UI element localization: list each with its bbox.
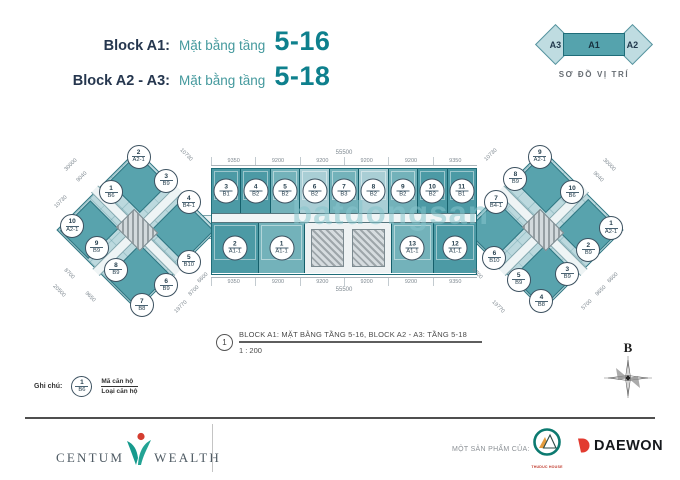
block-a2a3-subtitle: Mặt bằng tầng	[179, 73, 265, 88]
unit-code: 11	[458, 183, 465, 190]
unit-code: 7	[140, 298, 144, 305]
dimension-label: 9200	[388, 157, 432, 165]
dimension-label: 9200	[255, 157, 299, 165]
unit-circle: 12 A1-1	[443, 236, 468, 261]
location-block-a1-label: A1	[588, 40, 600, 50]
unit-circle: 7 B3	[331, 179, 356, 204]
compass: B	[602, 340, 654, 403]
footer-divider	[212, 424, 213, 472]
drawing-title: BLOCK A1: MẶT BẰNG TẦNG 5-16, BLOCK A2 -…	[239, 330, 482, 339]
unit-circle: 3 B1	[214, 179, 239, 204]
block-a1-bottom-row: 2 A1-1 1 A1-1	[212, 223, 476, 273]
unit-circle: 3 B9	[555, 262, 579, 286]
centum-wealth-icon	[126, 432, 152, 466]
location-block-a2-label: A2	[627, 39, 639, 49]
location-diagram: A3 A1 A2 SƠ ĐỒ VỊ TRÍ	[516, 30, 672, 79]
unit-circle: 7 B4-1	[484, 190, 508, 214]
unit-type: B2	[279, 191, 292, 199]
unit-type: B8	[535, 301, 548, 309]
unit-code: 6	[313, 183, 317, 190]
dimension-label: 9200	[300, 278, 344, 286]
dimension-label: 9350	[433, 278, 477, 286]
unit-type: B2	[396, 191, 409, 199]
unit-code: 5	[187, 254, 191, 261]
unit-code: 8	[514, 171, 518, 178]
dimension-row-top: 935092009200920092009350	[211, 157, 477, 166]
unit-code: 9	[401, 183, 405, 190]
unit-type: B4-1	[490, 202, 503, 210]
unit-code: 9	[538, 149, 542, 156]
location-block-a1: A1	[563, 33, 625, 56]
brochure-page: Block A1: Mặt bằng tầng 5-16 Block A2 - …	[0, 0, 680, 480]
unit-code: 5	[517, 272, 521, 279]
daewon-name: DAEWON	[594, 438, 663, 454]
product-of-label: MỘT SẢN PHẨM CỦA:	[452, 446, 530, 453]
daewon-logo: DAEWON	[576, 437, 663, 454]
block-a1-top-row: 3 B1 4 B2 5 B2	[212, 169, 476, 214]
drawing-number-circle: 1	[216, 334, 233, 351]
unit-type: A2-1	[605, 228, 618, 236]
unit-type: B9	[582, 249, 595, 257]
unit-code: 1	[609, 220, 613, 227]
brand-name-right: WEALTH	[154, 450, 221, 466]
block-a1-label: Block A1:	[104, 38, 170, 54]
dimension-label: 9200	[255, 278, 299, 286]
unit-code: 4	[254, 183, 258, 190]
unit-code: 6	[493, 250, 497, 257]
dimension-label: 9350	[433, 157, 477, 165]
unit-code: 10	[569, 185, 576, 192]
page-title: Block A1: Mặt bằng tầng 5-16 Block A2 - …	[22, 26, 330, 92]
dimension-label: 9200	[344, 278, 388, 286]
legend-label: Ghi chú:	[34, 383, 62, 390]
legend-explanation: Mã căn hộ Loại căn hộ	[101, 378, 137, 395]
block-a2a3-floor-range: 5-18	[274, 61, 330, 92]
unit-code: 7	[342, 183, 346, 190]
elevator-core	[304, 223, 391, 273]
unit-type: B3	[337, 191, 350, 199]
unit-cell: 12 A1-1	[434, 223, 476, 273]
unit-cell: 1 A1-1	[259, 223, 305, 273]
dimension-label: 9200	[300, 157, 344, 165]
unit-cell: 3 B1	[212, 169, 241, 213]
unit-type: B6	[566, 192, 579, 200]
unit-circle: 1 A2-1	[599, 216, 623, 240]
drawing-caption: 1 BLOCK A1: MẶT BẰNG TẦNG 5-16, BLOCK A2…	[216, 330, 482, 355]
wing-a3-plan: 3000090401073010730870020500965066008700…	[56, 131, 218, 329]
unit-type: B9	[160, 180, 173, 188]
unit-type: A1-1	[449, 248, 462, 256]
unit-code: 2	[233, 240, 237, 247]
brand-name-left: CENTUM	[56, 450, 124, 466]
unit-code: 10	[69, 218, 76, 225]
unit-code: 1	[280, 240, 284, 247]
unit-circle: 6 B10	[482, 246, 506, 270]
bottom-left-units: 2 A1-1 1 A1-1	[212, 223, 304, 273]
legend-unit-code: 1	[80, 379, 84, 386]
unit-type: A2-1	[66, 226, 79, 234]
unit-circle: 9 A2-1	[528, 145, 552, 169]
bottom-right-units: 13 A1-1 12 A1-1	[392, 223, 476, 273]
unit-circle: 13 A1-1	[400, 236, 425, 261]
wing-a2-plan: 10730300009040670019770660096505700 9 A2…	[462, 131, 624, 329]
unit-type: B2	[308, 191, 321, 199]
dimension-total-top: 55500	[211, 149, 477, 157]
dimension-label: 9350	[211, 157, 255, 165]
block-a1-plan: 55500 935092009200920092009350 3 B1 4 B2	[211, 149, 477, 321]
unit-circle: 8 B9	[503, 167, 527, 191]
unit-circle: 1 A1-1	[269, 236, 294, 261]
dimension-label: 9200	[344, 157, 388, 165]
unit-code: 8	[114, 262, 118, 269]
legend-symbol: 1 B6	[71, 376, 92, 397]
unit-type: B1	[220, 191, 233, 199]
unit-circle: 4 B4-1	[177, 190, 201, 214]
unit-type: B1	[455, 191, 468, 199]
unit-code: 3	[224, 183, 228, 190]
unit-circle: 10 A2-1	[60, 214, 84, 238]
legend-line1: Mã căn hộ	[101, 378, 137, 387]
unit-circle: 9 B2	[390, 179, 415, 204]
unit-type: B9	[561, 273, 574, 281]
block-a1-subtitle: Mặt bằng tầng	[179, 38, 265, 53]
unit-type: B9	[512, 279, 525, 287]
unit-type: B2	[367, 191, 380, 199]
unit-circle: 8 B9	[104, 258, 128, 282]
dimension-label: 9200	[388, 278, 432, 286]
unit-cell: 9 B2	[389, 169, 418, 213]
dimension-row-bottom: 935092009200920092009350	[211, 277, 477, 286]
unit-cell: 4 B2	[241, 169, 270, 213]
unit-type: B2	[249, 191, 262, 199]
unit-circle: 5 B9	[507, 268, 531, 292]
unit-code: 13	[409, 240, 416, 247]
unit-type: A1-1	[275, 248, 288, 256]
unit-cell: 7 B3	[330, 169, 359, 213]
unit-code: 3	[164, 173, 168, 180]
unit-code: 8	[372, 183, 376, 190]
unit-code: 3	[565, 266, 569, 273]
location-diagram-caption: SƠ ĐỒ VỊ TRÍ	[516, 70, 672, 79]
unit-cell: 6 B2	[300, 169, 329, 213]
compass-north-label: B	[602, 340, 654, 356]
unit-circle: 7 B8	[130, 293, 154, 317]
elevator-shaft	[311, 229, 344, 267]
unit-circle: 2 A1-1	[222, 236, 247, 261]
unit-circle: 6 B2	[302, 179, 327, 204]
unit-circle: 10 B2	[420, 179, 445, 204]
unit-type: A1-1	[406, 248, 419, 256]
unit-code: 9	[95, 240, 99, 247]
elevator-shaft	[352, 229, 385, 267]
block-a1-body: 3 B1 4 B2 5 B2	[211, 168, 477, 275]
centum-wealth-logo: CENTUM WEALTH	[56, 432, 221, 466]
unit-code: 2	[587, 242, 591, 249]
unit-cell: 13 A1-1	[392, 223, 435, 273]
thuduc-house-logo: THUDUC HOUSE	[528, 428, 566, 469]
location-diagram-row: A3 A1 A2	[516, 30, 672, 59]
unit-circle: 2 A2-1	[127, 145, 151, 169]
unit-code: 12	[451, 240, 458, 247]
unit-circle: 6 B9	[154, 273, 178, 297]
caption-rule	[239, 341, 482, 343]
unit-type: A2-1	[533, 156, 546, 164]
unit-circle: 5 B10	[177, 250, 201, 274]
unit-type: B6	[105, 192, 118, 200]
unit-code: 4	[187, 195, 191, 202]
unit-circle: 4 B8	[529, 289, 553, 313]
legend-line2: Loại căn hộ	[101, 388, 137, 395]
unit-type: B9	[509, 178, 522, 186]
unit-cell: 5 B2	[271, 169, 300, 213]
unit-cell: 10 B2	[418, 169, 447, 213]
unit-type: B10	[182, 261, 195, 269]
daewon-icon	[576, 437, 591, 454]
unit-type: A2-1	[132, 156, 145, 164]
unit-code: 1	[109, 185, 113, 192]
unit-type: B8	[135, 305, 148, 313]
unit-type: A1-1	[228, 248, 241, 256]
unit-circle: 1 B6	[99, 180, 123, 204]
unit-type: B4-1	[182, 202, 195, 210]
unit-circle: 4 B2	[243, 179, 268, 204]
unit-code: 6	[164, 278, 168, 285]
unit-type: B2	[426, 191, 439, 199]
unit-circle: 11 B1	[449, 179, 474, 204]
legend-unit-type: B6	[75, 386, 88, 394]
dimension-label: 9350	[211, 278, 255, 286]
unit-circle: 10 B6	[560, 180, 584, 204]
location-block-a3-label: A3	[550, 39, 562, 49]
legend: Ghi chú: 1 B6 Mã căn hộ Loại căn hộ	[34, 376, 138, 397]
unit-cell: 2 A1-1	[212, 223, 259, 273]
footer-rule	[25, 417, 655, 419]
unit-type: B9	[90, 247, 103, 255]
unit-type: B10	[488, 257, 501, 265]
drawing-scale: 1 : 200	[239, 346, 482, 355]
thuduc-house-icon	[530, 428, 564, 460]
unit-code: 10	[429, 183, 436, 190]
compass-rose-icon	[604, 356, 652, 398]
unit-type: B9	[160, 285, 173, 293]
unit-code: 5	[283, 183, 287, 190]
unit-code: 4	[540, 294, 544, 301]
unit-circle: 9 B9	[85, 236, 109, 260]
thuduc-house-name: THUDUC HOUSE	[528, 465, 566, 469]
unit-code: 7	[494, 195, 498, 202]
unit-circle: 2 B9	[576, 238, 600, 262]
unit-circle: 5 B2	[273, 179, 298, 204]
unit-code: 2	[137, 149, 141, 156]
wing-a3-units: 2 A2-1 3 B9 1 B6 4 B4-1 10 A2-1 9 B9	[56, 131, 218, 329]
unit-cell: 8 B2	[359, 169, 388, 213]
dimension-total-bottom: 55500	[211, 286, 477, 294]
unit-circle: 3 B9	[154, 169, 178, 193]
unit-cell: 11 B1	[448, 169, 476, 213]
block-a2a3-label: Block A2 - A3:	[73, 73, 170, 89]
unit-circle: 8 B2	[361, 179, 386, 204]
central-corridor	[212, 214, 476, 223]
block-a1-floor-range: 5-16	[274, 26, 330, 57]
unit-type: B9	[109, 269, 122, 277]
